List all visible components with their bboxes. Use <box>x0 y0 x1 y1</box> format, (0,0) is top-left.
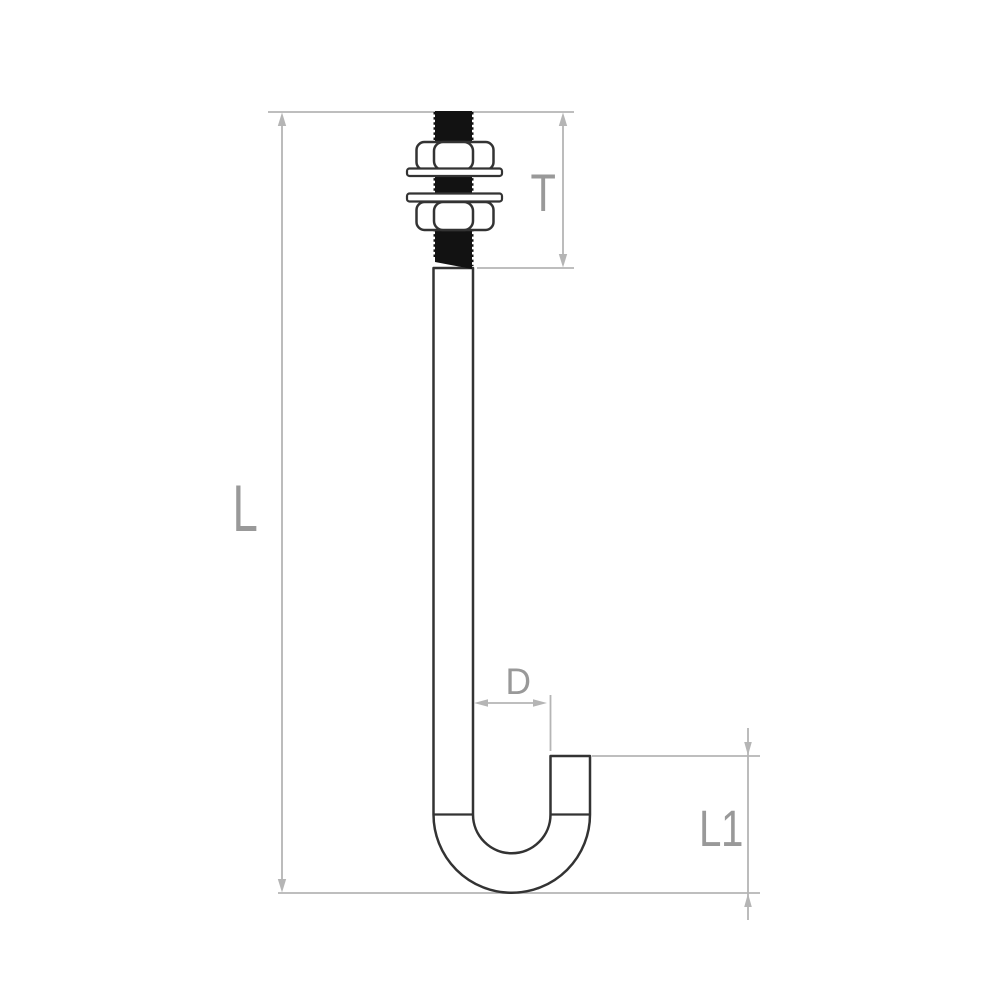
hex-nut-upper <box>417 142 494 170</box>
washer-lower <box>407 194 502 202</box>
threaded-sections <box>435 111 472 269</box>
drawing-background <box>0 0 1000 1000</box>
label-overall-length: L <box>233 471 258 545</box>
hex-nut-lower <box>417 202 494 230</box>
thread-bottom <box>435 228 472 269</box>
j-bolt-technical-drawing: L T D L1 <box>0 0 1000 1000</box>
hex-nut-lower-face <box>434 202 473 230</box>
hex-nut-upper-face <box>434 142 473 170</box>
diagram-canvas: L T D L1 <box>0 0 1000 1000</box>
label-thread-length: T <box>531 164 556 223</box>
label-hook-height: L1 <box>699 800 743 857</box>
label-rod-diameter: D <box>506 661 531 702</box>
thread-top <box>435 111 472 143</box>
washer-upper <box>407 169 502 177</box>
